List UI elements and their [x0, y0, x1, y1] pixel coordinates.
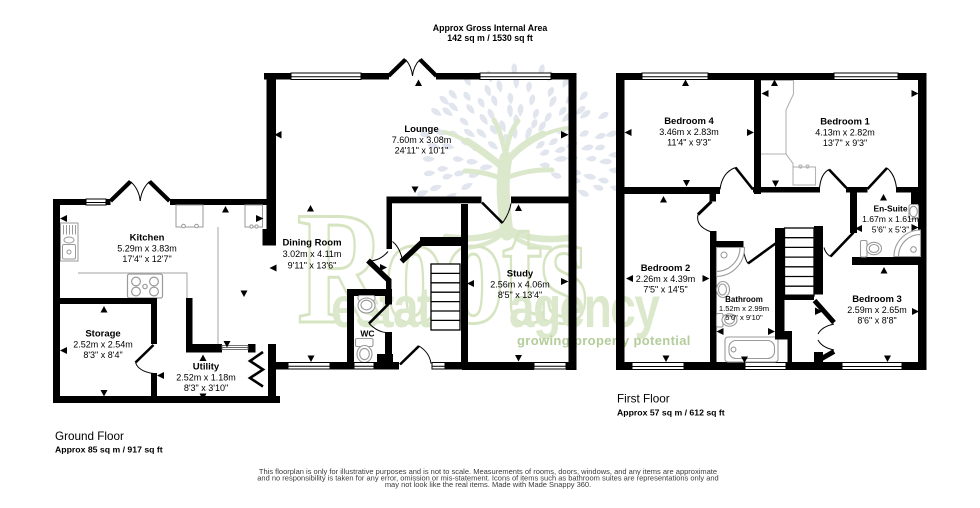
svg-text:7'5" x 14'5": 7'5" x 14'5" — [643, 285, 687, 295]
svg-text:En-Suite: En-Suite — [874, 204, 908, 214]
svg-text:1.52m x 2.99m: 1.52m x 2.99m — [719, 304, 769, 313]
svg-text:142 sq m / 1530 sq ft: 142 sq m / 1530 sq ft — [447, 33, 533, 43]
svg-text:8'3" x 8'4": 8'3" x 8'4" — [83, 350, 122, 360]
svg-text:Utility: Utility — [193, 362, 220, 373]
svg-text:2.59m x 2.65m: 2.59m x 2.65m — [847, 305, 907, 315]
svg-text:7.60m x 3.08m: 7.60m x 3.08m — [392, 135, 452, 145]
svg-text:may not look like the real ite: may not look like the real items. Made w… — [385, 480, 591, 489]
svg-text:3.46m x 2.83m: 3.46m x 2.83m — [659, 127, 719, 137]
svg-text:Ground Floor: Ground Floor — [55, 430, 124, 443]
svg-text:Lounge: Lounge — [404, 124, 438, 135]
svg-text:Bedroom 3: Bedroom 3 — [852, 294, 902, 305]
svg-text:Study: Study — [507, 269, 534, 280]
svg-text:5.29m x 3.83m: 5.29m x 3.83m — [117, 243, 177, 253]
svg-text:1.67m x 1.61m: 1.67m x 1.61m — [862, 214, 919, 224]
svg-text:Approx 85 sq m / 917 sq ft: Approx 85 sq m / 917 sq ft — [55, 445, 163, 455]
svg-text:Storage: Storage — [85, 329, 120, 340]
svg-text:Kitchen: Kitchen — [130, 233, 165, 244]
svg-text:Bedroom 2: Bedroom 2 — [641, 263, 691, 274]
svg-text:Approx Gross Internal Area: Approx Gross Internal Area — [433, 23, 548, 33]
svg-text:13'7" x 9'3": 13'7" x 9'3" — [823, 138, 867, 148]
svg-text:WC: WC — [360, 329, 374, 339]
svg-text:First Floor: First Floor — [617, 392, 670, 405]
svg-text:11'4" x 9'3": 11'4" x 9'3" — [667, 138, 711, 148]
svg-text:5'0" x 9'10": 5'0" x 9'10" — [725, 313, 763, 322]
svg-text:2.52m x 2.54m: 2.52m x 2.54m — [73, 339, 133, 349]
svg-text:Bedroom 4: Bedroom 4 — [664, 116, 714, 127]
svg-text:Dining Room: Dining Room — [282, 238, 341, 249]
svg-text:Bedroom 1: Bedroom 1 — [820, 117, 870, 128]
svg-text:9'11" x 13'6": 9'11" x 13'6" — [288, 261, 337, 271]
svg-text:24'11" x 10'1": 24'11" x 10'1" — [395, 146, 449, 156]
svg-text:3.02m x 4.11m: 3.02m x 4.11m — [283, 249, 342, 259]
svg-text:growing property potential: growing property potential — [517, 333, 691, 348]
svg-text:5'6" x 5'3": 5'6" x 5'3" — [872, 225, 910, 235]
svg-text:2.52m x 1.18m: 2.52m x 1.18m — [176, 372, 236, 382]
svg-text:2.56m x 4.06m: 2.56m x 4.06m — [490, 279, 550, 289]
svg-text:Approx 57 sq m / 612 sq ft: Approx 57 sq m / 612 sq ft — [617, 408, 725, 418]
svg-text:8'5" x 13'4": 8'5" x 13'4" — [498, 290, 542, 300]
svg-text:8'6" x 8'8": 8'6" x 8'8" — [857, 316, 896, 326]
svg-text:8'3" x 3'10": 8'3" x 3'10" — [184, 383, 228, 393]
svg-text:4.13m x 2.82m: 4.13m x 2.82m — [815, 127, 875, 137]
svg-text:Bathroom: Bathroom — [725, 295, 763, 304]
svg-text:2.26m x 4.39m: 2.26m x 4.39m — [636, 274, 696, 284]
svg-text:17'4" x 12'7": 17'4" x 12'7" — [122, 254, 171, 264]
